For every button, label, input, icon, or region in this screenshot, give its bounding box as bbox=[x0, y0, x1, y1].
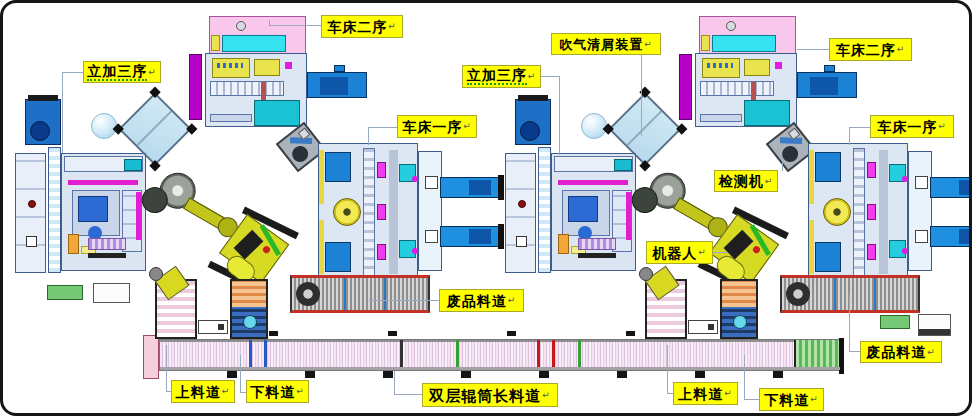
blue-cabinet bbox=[325, 152, 351, 182]
callout-text: 废品料道 bbox=[447, 294, 507, 308]
callout-unload-right[interactable]: 下料道↵ bbox=[759, 388, 824, 411]
teal-unit bbox=[124, 159, 142, 171]
callout-lathe2-right[interactable]: 车床二序↵ bbox=[829, 38, 912, 61]
control-panel bbox=[212, 58, 250, 78]
orange-unit bbox=[558, 234, 569, 254]
control-panel bbox=[744, 59, 770, 76]
fan bbox=[726, 21, 736, 31]
gauge-dial bbox=[289, 143, 311, 165]
callout-scrap-middle[interactable]: 废品料道↵ bbox=[439, 289, 524, 312]
return-mark: ↵ bbox=[542, 391, 551, 400]
guard bbox=[744, 100, 790, 126]
callout-robot[interactable]: 机器人↵ bbox=[646, 241, 713, 264]
lathe2-body bbox=[205, 53, 307, 127]
corner-knob bbox=[149, 87, 160, 98]
yellow-strip bbox=[319, 150, 324, 204]
control-panel bbox=[254, 59, 280, 76]
scrap-roller-conveyor bbox=[780, 275, 920, 313]
loading-tower bbox=[645, 279, 687, 339]
return-mark: ↵ bbox=[765, 177, 774, 186]
connector-line bbox=[394, 394, 423, 395]
chuck bbox=[823, 198, 851, 226]
magenta-pad bbox=[867, 204, 876, 220]
machining-cell-1 bbox=[3, 3, 493, 416]
magenta-pad bbox=[867, 162, 876, 178]
callout-lathe1-left[interactable]: 车床一序↵ bbox=[397, 115, 477, 138]
connector-line bbox=[797, 49, 830, 50]
yellow-strip bbox=[319, 220, 324, 274]
corner-knob bbox=[639, 160, 650, 171]
callout-text: 上料道 bbox=[176, 385, 221, 399]
roller-pack bbox=[88, 238, 126, 250]
callout-load-left[interactable]: 上料道↵ bbox=[171, 380, 235, 403]
yellow-unit bbox=[211, 35, 220, 51]
belt bbox=[320, 77, 348, 95]
connector-line bbox=[667, 345, 668, 394]
magenta-pad bbox=[377, 244, 386, 260]
twin-lathe-body bbox=[808, 143, 908, 279]
return-mark: ↵ bbox=[222, 387, 231, 396]
side-panel bbox=[908, 151, 932, 271]
indicator bbox=[262, 245, 272, 255]
yellow-strip bbox=[809, 150, 814, 204]
sphere-marker bbox=[91, 113, 117, 139]
return-mark: ↵ bbox=[296, 387, 305, 396]
return-mark: ↵ bbox=[897, 45, 906, 54]
connector-line bbox=[849, 293, 850, 352]
callout-text: 车床一序 bbox=[402, 120, 462, 134]
callout-text: 上料道 bbox=[678, 387, 723, 401]
bracket bbox=[824, 65, 835, 72]
connector-line bbox=[744, 355, 745, 400]
return-mark: ↵ bbox=[698, 248, 707, 257]
lathe2-top-housing bbox=[699, 16, 796, 54]
indicator bbox=[775, 62, 782, 69]
vmc-electrical-cabinet bbox=[505, 153, 536, 273]
tower-trays bbox=[232, 281, 266, 307]
white-bin bbox=[918, 314, 951, 336]
connector-line bbox=[782, 157, 783, 171]
vmc-chip-conveyor bbox=[48, 147, 61, 273]
callout-text: 下料道 bbox=[764, 393, 809, 407]
callout-unload-left[interactable]: 下料道↵ bbox=[246, 380, 309, 403]
control-panel bbox=[702, 58, 740, 78]
cabinet-knob bbox=[28, 200, 36, 208]
center-column bbox=[363, 148, 375, 276]
corner-knob bbox=[186, 123, 197, 134]
callout-vmc-left[interactable]: 立加三序↵ bbox=[83, 61, 161, 83]
connector-line bbox=[166, 345, 167, 392]
vmc-work-area bbox=[61, 153, 146, 271]
lathe2-top-housing bbox=[209, 16, 306, 54]
divider bbox=[834, 278, 836, 310]
callout-text: 检测机 bbox=[719, 174, 764, 188]
window bbox=[712, 35, 776, 52]
return-mark: ↵ bbox=[148, 68, 157, 77]
rack bbox=[578, 253, 616, 258]
white-bin bbox=[93, 283, 130, 303]
callout-text: 双层辊筒长料道 bbox=[429, 388, 541, 403]
bracket bbox=[334, 65, 345, 72]
callout-text: 车床一序 bbox=[877, 120, 937, 134]
return-mark: ↵ bbox=[463, 122, 472, 131]
spindle-head bbox=[78, 196, 108, 222]
sprocket bbox=[786, 282, 810, 306]
callout-vmc-right[interactable]: 立加三序↵ bbox=[462, 65, 541, 88]
return-mark: ↵ bbox=[938, 122, 947, 131]
green-bin bbox=[47, 285, 83, 300]
sprocket bbox=[296, 282, 320, 306]
connector-line bbox=[849, 127, 871, 128]
spindle-head bbox=[568, 196, 598, 222]
connector-line bbox=[541, 76, 560, 77]
connector-line bbox=[269, 25, 321, 26]
yellow-strip bbox=[809, 220, 814, 274]
divider bbox=[384, 278, 386, 310]
twin-lathe-conveyor-upper bbox=[930, 177, 972, 198]
yellow-unit bbox=[701, 35, 710, 51]
corner-knob bbox=[149, 160, 160, 171]
callout-text: 立加三序 bbox=[467, 68, 527, 85]
callout-text: 下料道 bbox=[250, 385, 295, 399]
callout-air-blow[interactable]: 吹气清屑装置↵ bbox=[551, 33, 661, 55]
panel bbox=[210, 114, 252, 122]
side-panel bbox=[418, 151, 442, 271]
teal-unit bbox=[614, 159, 632, 171]
guide bbox=[389, 150, 398, 274]
orange-unit bbox=[68, 234, 79, 254]
sphere-marker bbox=[581, 113, 607, 139]
divider bbox=[344, 278, 346, 310]
roller-pack bbox=[578, 238, 616, 250]
connector-line bbox=[713, 252, 727, 253]
guard bbox=[254, 100, 300, 126]
tower-motor bbox=[149, 267, 163, 281]
cabinet-window bbox=[516, 236, 527, 247]
guide bbox=[879, 150, 888, 274]
indicator bbox=[285, 62, 292, 69]
unloading-tower bbox=[720, 279, 758, 339]
magenta-rail bbox=[136, 192, 141, 240]
callout-long-conveyor[interactable]: 双层辊筒长料道↵ bbox=[422, 383, 558, 407]
return-mark: ↵ bbox=[388, 22, 397, 31]
vmc-electrical-cabinet bbox=[15, 153, 46, 273]
lathe-op2-machine bbox=[691, 16, 803, 128]
connector-line bbox=[369, 300, 439, 301]
return-mark: ↵ bbox=[810, 395, 819, 404]
connector-line bbox=[559, 76, 560, 155]
callout-load-right[interactable]: 上料道↵ bbox=[673, 382, 738, 405]
callout-lathe1-right[interactable]: 车床一序↵ bbox=[870, 115, 954, 138]
unloading-tower bbox=[230, 279, 268, 339]
vertical-machining-center bbox=[503, 143, 638, 275]
magenta-pad bbox=[867, 244, 876, 260]
control-pendant bbox=[688, 320, 718, 334]
connector-line bbox=[368, 127, 369, 145]
magenta-pad bbox=[377, 162, 386, 178]
lathe-op1-twin-machine bbox=[808, 143, 972, 279]
return-mark: ↵ bbox=[927, 348, 936, 357]
connector-line bbox=[394, 371, 395, 395]
lathe-op1-twin-machine bbox=[318, 143, 518, 279]
callout-scrap-right[interactable]: 废品料道↵ bbox=[860, 341, 942, 363]
callout-text: 车床二序 bbox=[836, 43, 896, 57]
twin-lathe-conveyor-lower bbox=[930, 226, 972, 247]
connector-line bbox=[849, 127, 850, 145]
connector-line bbox=[240, 355, 241, 393]
connector-line bbox=[744, 399, 760, 400]
lathe2-outfeed-conveyor bbox=[797, 72, 857, 98]
lathe2-side-cabinet bbox=[189, 54, 202, 120]
lathe-op2-machine bbox=[201, 16, 313, 128]
cabinet-window bbox=[26, 236, 37, 247]
rack bbox=[88, 253, 126, 258]
panel bbox=[700, 114, 742, 122]
twin-lathe-body bbox=[318, 143, 418, 279]
blue-cabinet bbox=[325, 242, 351, 272]
callout-text: 立加三序 bbox=[87, 64, 147, 81]
return-mark: ↵ bbox=[528, 72, 537, 81]
return-mark: ↵ bbox=[508, 296, 517, 305]
roller-row bbox=[700, 81, 774, 96]
divider bbox=[874, 278, 876, 310]
indicator bbox=[752, 245, 762, 255]
callout-lathe2-left[interactable]: 车床二序↵ bbox=[321, 15, 403, 38]
callout-text: 机器人 bbox=[652, 246, 697, 260]
callout-detector[interactable]: 检测机↵ bbox=[714, 170, 778, 192]
lathe2-side-cabinet bbox=[679, 54, 692, 120]
green-bin bbox=[880, 315, 910, 329]
blue-cabinet bbox=[815, 152, 841, 182]
lathe2-body bbox=[695, 53, 797, 127]
connector-line bbox=[269, 20, 270, 26]
callout-text: 吹气清屑装置 bbox=[559, 38, 643, 51]
vmc-chip-conveyor bbox=[538, 147, 551, 273]
magenta-rail bbox=[626, 192, 631, 240]
magenta-rail bbox=[558, 180, 628, 185]
fan bbox=[236, 21, 246, 31]
return-mark: ↵ bbox=[644, 40, 653, 49]
belt bbox=[810, 77, 838, 95]
control-pendant bbox=[198, 320, 228, 334]
center-column bbox=[853, 148, 865, 276]
tower-hub bbox=[733, 315, 747, 329]
connector-line bbox=[62, 72, 84, 73]
loading-tower bbox=[155, 279, 197, 339]
cabinet-knob bbox=[518, 200, 526, 208]
callout-text: 废品料道 bbox=[866, 345, 926, 359]
vmc-work-area bbox=[551, 153, 636, 271]
blue-cabinet bbox=[815, 242, 841, 272]
window bbox=[222, 35, 286, 52]
magenta-pad bbox=[377, 204, 386, 220]
roller-row bbox=[210, 81, 284, 96]
vmc-loader-unit bbox=[515, 99, 551, 145]
lathe2-outfeed-conveyor bbox=[307, 72, 367, 98]
connector-line bbox=[62, 72, 63, 153]
corner-knob bbox=[676, 123, 687, 134]
vertical-machining-center bbox=[13, 143, 148, 275]
production-line-layout-diagram: 立加三序↵ 车床二序↵ 车床一序↵ 吹气清屑装置↵ 立加三序↵ 车床二序↵ 车床… bbox=[0, 0, 972, 416]
callout-text: 车床二序 bbox=[327, 20, 387, 34]
magenta-rail bbox=[68, 180, 138, 185]
scrap-roller-conveyor bbox=[290, 275, 430, 313]
tower-trays bbox=[722, 281, 756, 307]
connector-line bbox=[368, 127, 398, 128]
vmc-loader-unit bbox=[25, 99, 61, 145]
connector-line bbox=[641, 54, 642, 136]
chuck bbox=[333, 198, 361, 226]
tower-hub bbox=[243, 315, 257, 329]
tower-motor bbox=[639, 267, 653, 281]
return-mark: ↵ bbox=[724, 389, 733, 398]
